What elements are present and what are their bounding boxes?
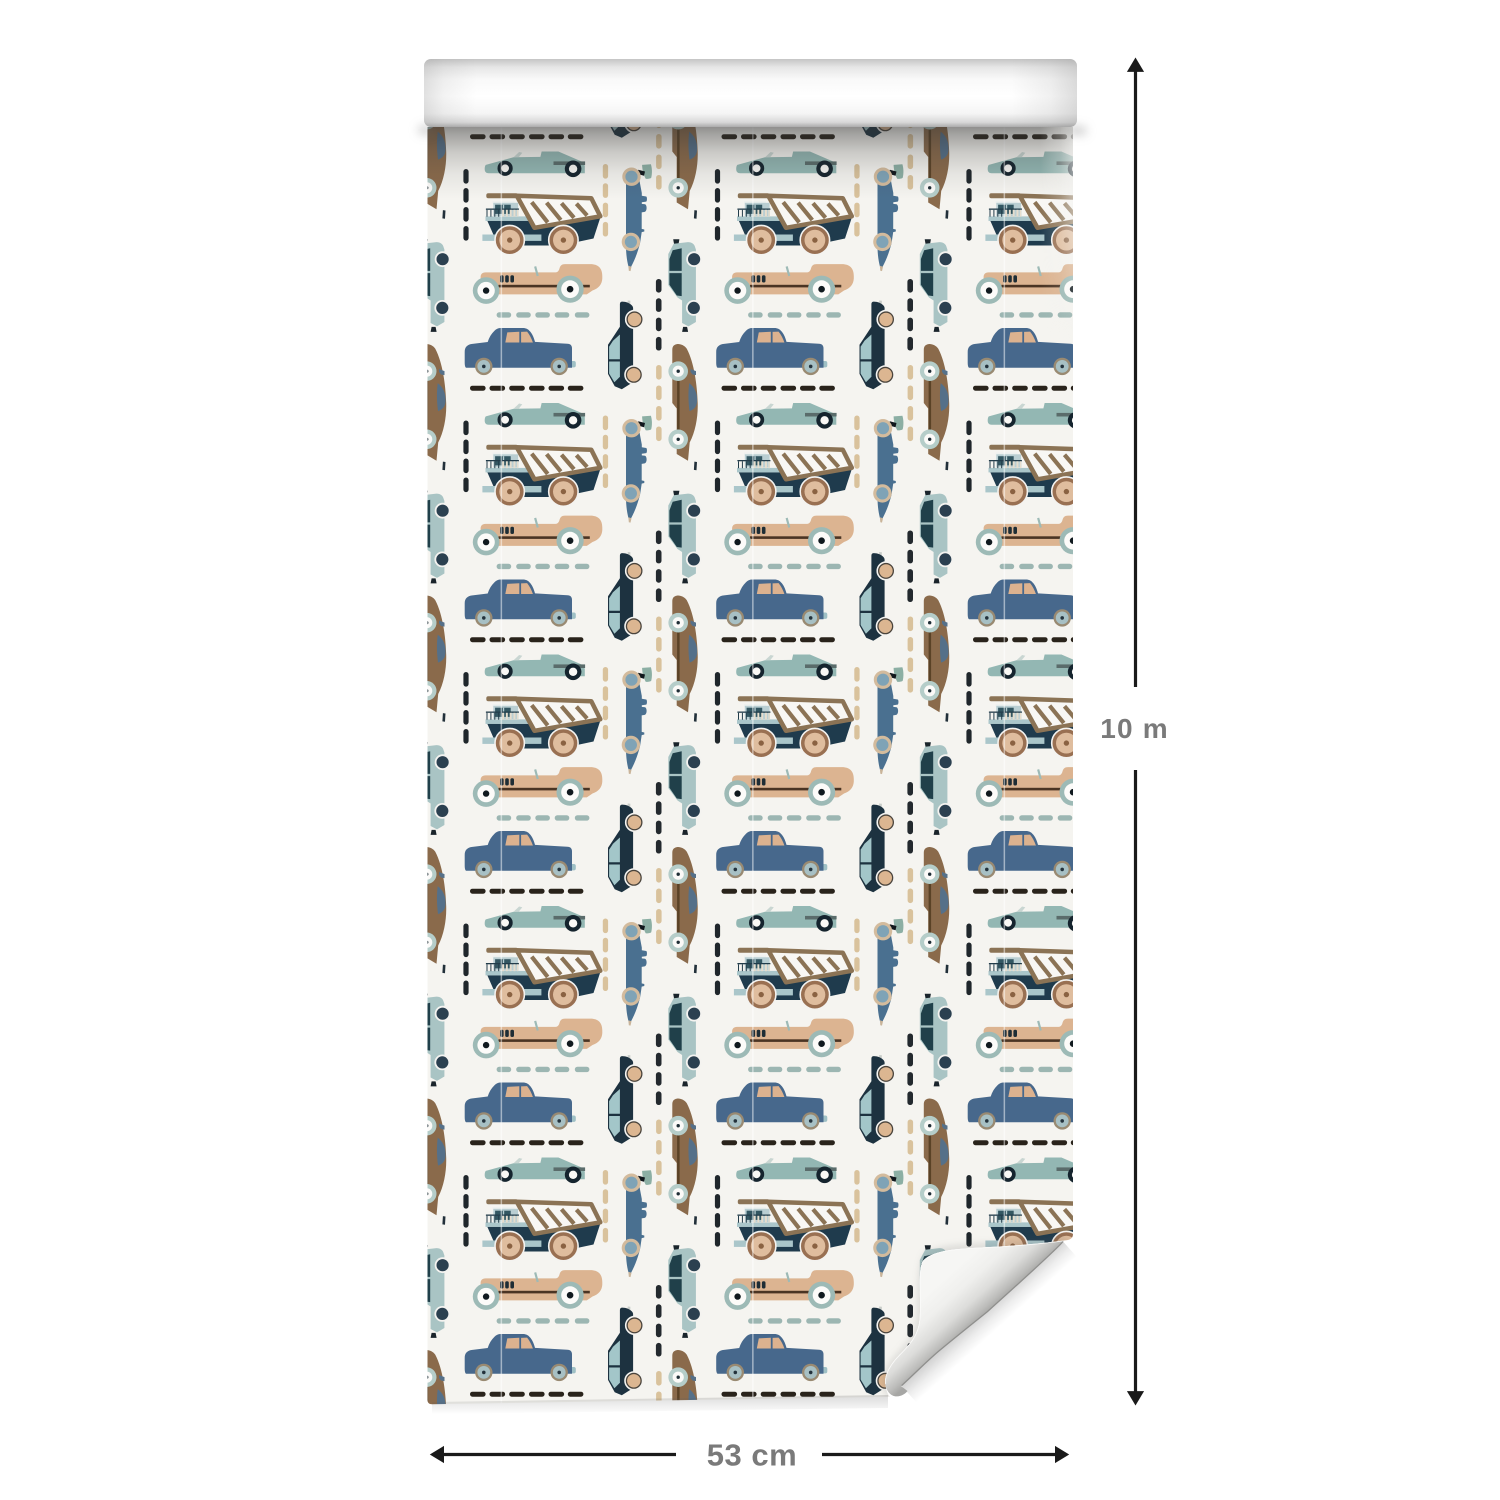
svg-text:53 cm: 53 cm bbox=[707, 1438, 797, 1473]
svg-text:10 m: 10 m bbox=[1100, 713, 1169, 744]
